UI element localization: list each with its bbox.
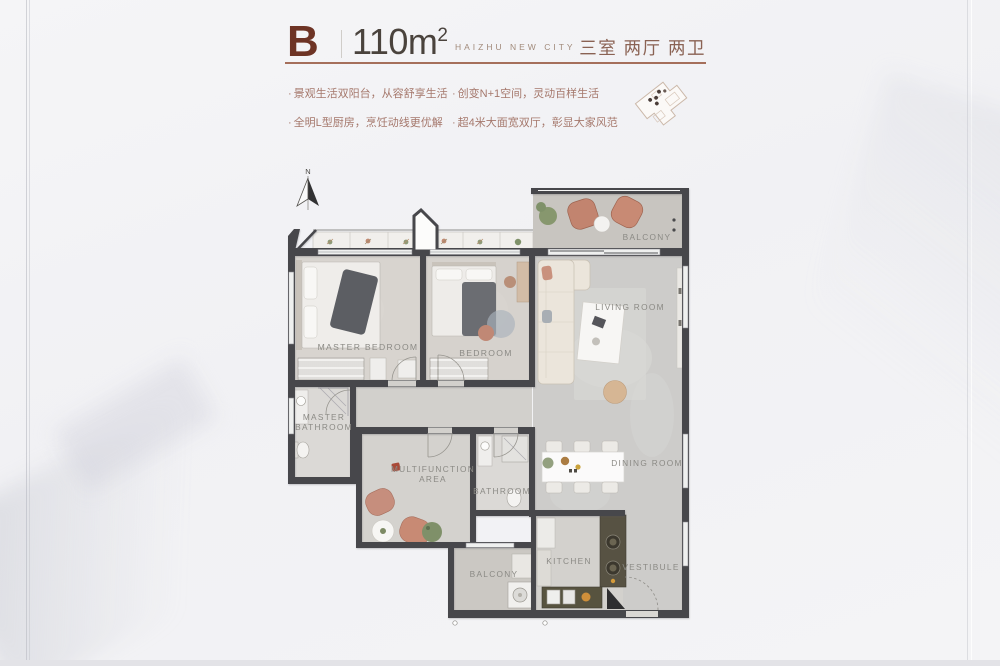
label-multifunction-2: AREA xyxy=(419,474,447,484)
feature-item-2: ·全明L型厨房，烹饪动线更优解 xyxy=(288,114,452,130)
area-superscript: 2 xyxy=(437,25,447,46)
marble-streak-left xyxy=(53,357,218,493)
header-divider xyxy=(341,30,342,58)
project-name: HAIZHU NEW CITY xyxy=(455,42,576,52)
brochure-page: { "header": { "unit_label": "B", "area_v… xyxy=(0,0,1000,666)
floor-plan: BALCONY LIVING ROOM MASTER BEDROOM BEDRO… xyxy=(280,160,720,640)
north-label: N xyxy=(305,167,310,176)
label-vestibule: VESTIBULE xyxy=(622,562,679,572)
right-fold-highlight xyxy=(971,0,972,666)
label-multifunction-1: MULTIFUNCTION xyxy=(391,464,475,474)
left-fold-line-2 xyxy=(29,0,30,666)
label-balcony-bottom: BALCONY xyxy=(470,569,519,579)
label-dining-room: DINING ROOM xyxy=(611,458,682,468)
feature-list: ·景观生活双阳台，从容舒享生活 ·创变N+1空间，灵动百样生活 ·全明L型厨房，… xyxy=(288,85,618,130)
north-arrow-icon: N xyxy=(297,167,319,210)
feature-item-3: ·创变N+1空间，灵动百样生活 xyxy=(452,85,618,101)
label-bathroom: BATHROOM xyxy=(473,486,531,496)
left-fold-line xyxy=(26,0,27,666)
site-outline xyxy=(635,77,691,131)
feature-item-4: ·超4米大面宽双厅，彰显大家风范 xyxy=(452,114,618,130)
label-master-bathroom-2: BATHROOM xyxy=(295,422,353,432)
site-plan-thumbnail xyxy=(620,72,704,134)
label-balcony-top: BALCONY xyxy=(623,232,672,242)
unit-type-label: B xyxy=(287,20,319,64)
label-bedroom: BEDROOM xyxy=(459,348,513,358)
unit-area: 110m2 xyxy=(352,24,447,60)
bottom-edge-band xyxy=(0,660,1000,666)
marble-streak-right xyxy=(764,71,1000,529)
label-master-bathroom-1: MASTER xyxy=(303,412,345,422)
label-living-room: LIVING ROOM xyxy=(595,302,665,312)
label-master-bedroom: MASTER BEDROOM xyxy=(318,342,419,352)
header-rule xyxy=(285,62,706,64)
right-fold-line xyxy=(967,0,968,666)
layout-summary: 三室 两厅 两卫 xyxy=(579,35,706,60)
label-kitchen: KITCHEN xyxy=(546,556,592,566)
feature-item-1: ·景观生活双阳台，从容舒享生活 xyxy=(288,85,452,101)
